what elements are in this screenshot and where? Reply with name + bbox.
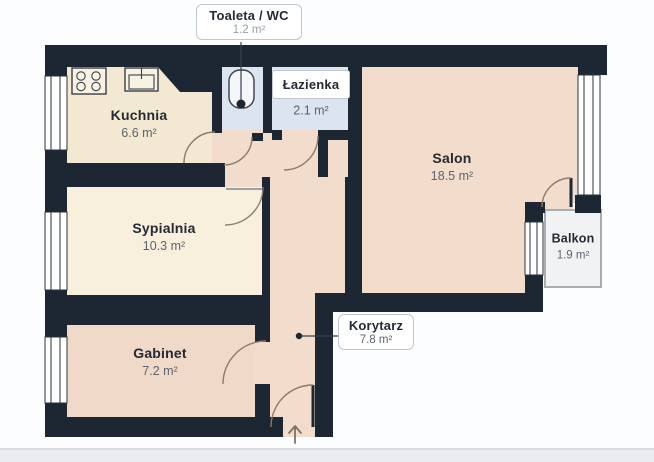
- korytarz-floor: [270, 177, 345, 293]
- salon-floor: [362, 203, 525, 293]
- gabinet-label: Gabinet 7.2 m²: [133, 345, 187, 379]
- gabinet-window: [45, 337, 67, 403]
- salon-name: Salon: [431, 150, 473, 168]
- korytarz-floor: [255, 342, 270, 384]
- lazienka-area-label: 2.1 m²: [293, 103, 328, 120]
- balkon-label: Balkon 1.9 m²: [552, 232, 595, 263]
- bottom-strip: [0, 450, 654, 462]
- korytarz-floor: [225, 177, 262, 187]
- floor-plan: Kuchnia 6.6 m² Sypialnia 10.3 m² Gabinet…: [0, 0, 654, 462]
- gabinet-name: Gabinet: [133, 345, 187, 363]
- kitchen-window: [45, 76, 67, 150]
- kuchnia-name: Kuchnia: [111, 107, 168, 125]
- sypialnia-label: Sypialnia 10.3 m²: [132, 220, 195, 254]
- korytarz-label-box: Korytarz 7.8 m²: [338, 314, 414, 350]
- gabinet-area: 7.2 m²: [133, 363, 187, 379]
- sink-icon: [125, 68, 158, 91]
- bottom-divider: [0, 448, 654, 450]
- lazienka-area: 2.1 m²: [293, 104, 328, 120]
- korytarz-area: 7.8 m²: [345, 334, 407, 346]
- salon-label: Salon 18.5 m²: [431, 150, 473, 184]
- toaleta-label-box: Toaleta / WC 1.2 m²: [196, 4, 302, 40]
- kuchnia-label: Kuchnia 6.6 m²: [111, 107, 168, 141]
- lazienka-label-box: Łazienka: [272, 70, 350, 99]
- balkon-area: 1.9 m²: [552, 248, 595, 262]
- balkon-window: [525, 222, 543, 275]
- stove-icon: [72, 68, 106, 94]
- salon-area: 18.5 m²: [431, 168, 473, 184]
- salon-window: [578, 75, 600, 195]
- lazienka-name: Łazienka: [283, 77, 340, 92]
- korytarz-name: Korytarz: [345, 318, 407, 333]
- korytarz-leader-dot: [296, 333, 302, 339]
- balkon-name: Balkon: [552, 232, 595, 248]
- toaleta-area: 1.2 m²: [203, 24, 295, 36]
- sypialnia-name: Sypialnia: [132, 220, 195, 238]
- kuchnia-area: 6.6 m²: [111, 125, 168, 141]
- sypialnia-area: 10.3 m²: [132, 238, 195, 254]
- sypialnia-window: [45, 212, 67, 290]
- korytarz-floor: [283, 412, 315, 437]
- toaleta-name: Toaleta / WC: [203, 8, 295, 23]
- korytarz-floor: [270, 293, 315, 417]
